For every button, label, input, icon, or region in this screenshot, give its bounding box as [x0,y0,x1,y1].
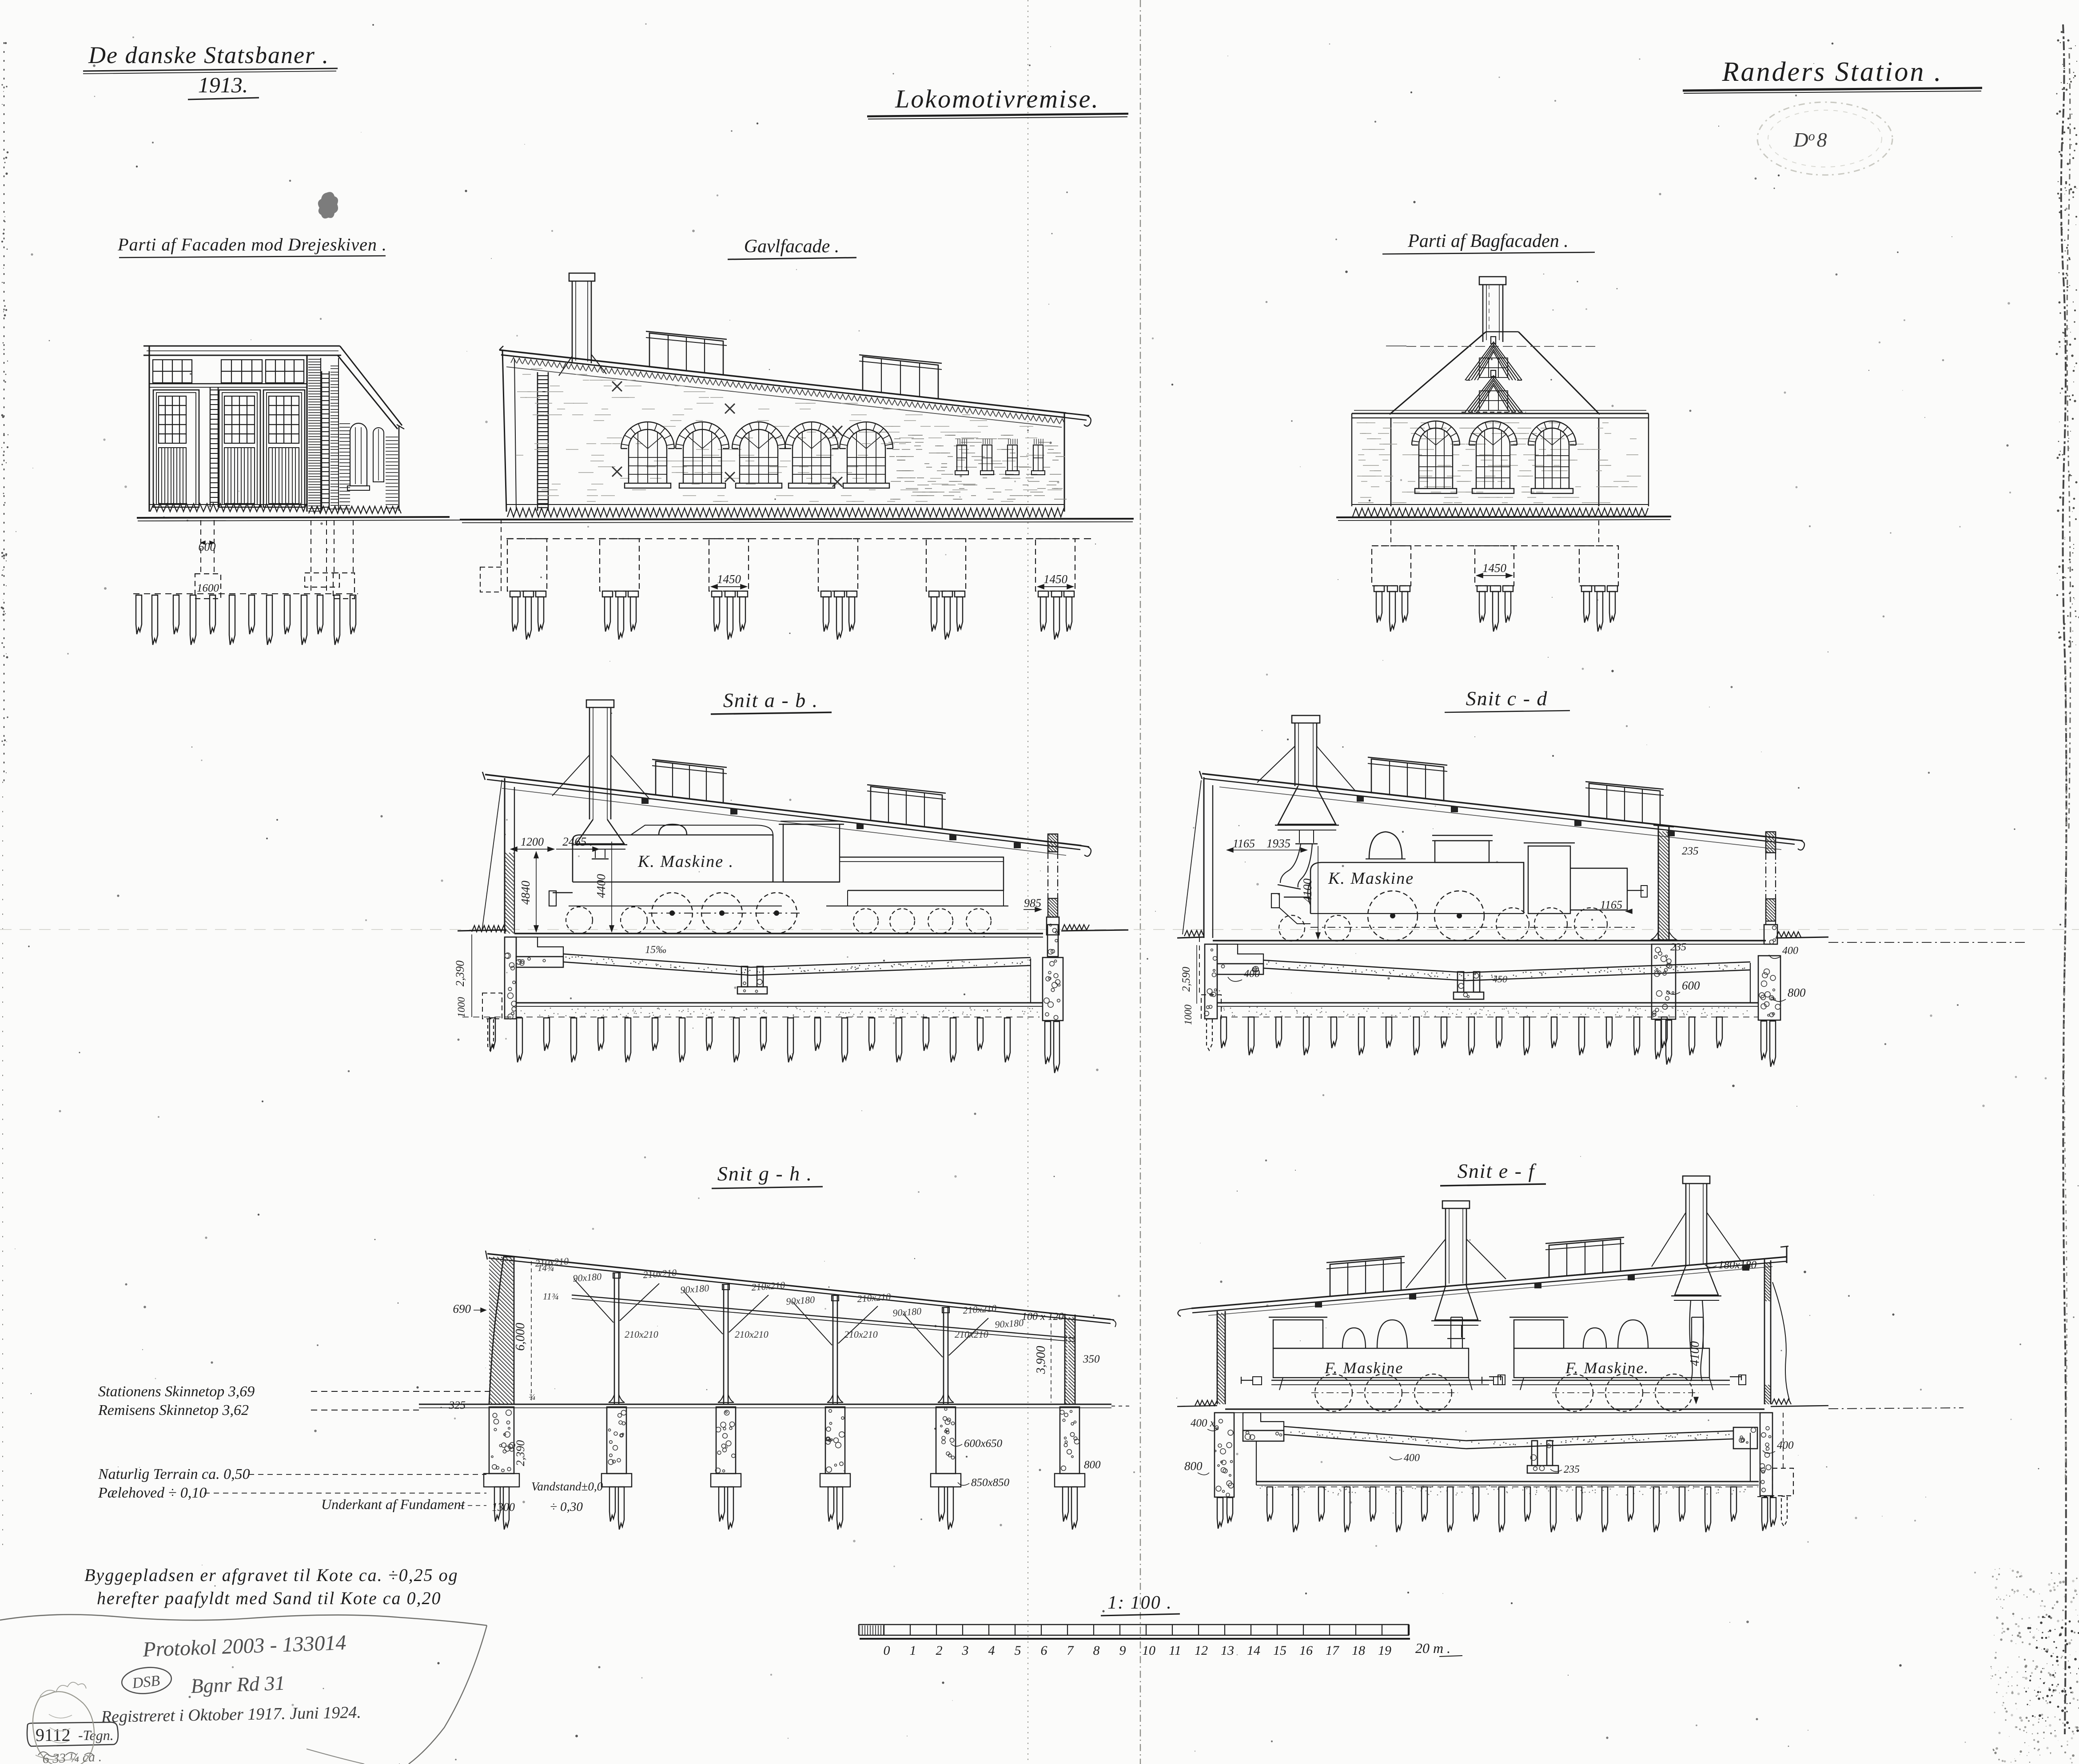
svg-text:1913.: 1913. [198,72,248,97]
svg-text:400 x: 400 x [1191,1417,1215,1429]
svg-text:Underkant af Fundament: Underkant af Fundament [321,1496,466,1512]
svg-text:1000: 1000 [1183,1005,1194,1025]
svg-text:Stationens Skinnetop 3,69: Stationens Skinnetop 3,69 [98,1383,255,1400]
svg-text:Naturlig Terrain ca. 0,50: Naturlig Terrain ca. 0,50 [98,1466,250,1482]
svg-text:1: 100 .: 1: 100 . [1107,1593,1172,1613]
svg-text:1000: 1000 [456,997,467,1018]
svg-text:8: 8 [1093,1643,1100,1658]
svg-text:2,590: 2,590 [1180,966,1192,992]
svg-text:450: 450 [1493,973,1507,985]
svg-text:÷ 0,30: ÷ 0,30 [550,1500,583,1514]
svg-text:4: 4 [988,1643,995,1658]
svg-text:2465 .: 2465 . [562,835,593,848]
svg-text:Vandstand±0,0: Vandstand±0,0 [531,1480,603,1493]
svg-text:Snit c - d: Snit c - d [1466,687,1548,710]
svg-text:2: 2 [936,1643,943,1658]
svg-text:12: 12 [1195,1643,1208,1658]
svg-text:F. Maskine: F. Maskine [1324,1359,1403,1377]
svg-text:K. Maskine: K. Maskine [1328,869,1414,888]
svg-text:1450: 1450 [1043,572,1068,586]
svg-text:13: 13 [1221,1643,1234,1658]
svg-text:90x180: 90x180 [680,1283,709,1295]
svg-text:800: 800 [1084,1459,1101,1471]
svg-text:6,000: 6,000 [514,1323,527,1351]
svg-text:Randers Station .: Randers Station . [1722,57,1943,87]
svg-text:210x210: 210x210 [963,1303,997,1316]
svg-text:6 33 ¼ ca .: 6 33 ¼ ca . [42,1749,102,1764]
svg-text:210x210: 210x210 [751,1279,785,1293]
svg-text:16: 16 [1299,1643,1313,1658]
svg-text:1300: 1300 [492,1501,515,1514]
svg-text:Snit g - h .: Snit g - h . [717,1162,812,1185]
svg-text:De danske Statsbaner .: De danske Statsbaner . [88,42,329,68]
svg-text:-Tegn.: -Tegn. [78,1727,114,1743]
svg-text:1165: 1165 [1600,898,1622,911]
svg-text:850x850: 850x850 [971,1477,1010,1489]
svg-text:235: 235 [1682,845,1699,857]
svg-text:11¾: 11¾ [543,1291,558,1302]
svg-text:90x180: 90x180 [786,1294,815,1307]
svg-text:600x650: 600x650 [964,1438,1003,1450]
svg-text:Parti af Bagfacaden .: Parti af Bagfacaden . [1407,231,1569,251]
svg-text:15‰: 15‰ [645,944,666,956]
svg-text:800: 800 [1788,986,1806,999]
svg-text:210x210: 210x210 [857,1291,891,1304]
svg-text:K. Maskine .: K. Maskine . [637,852,734,871]
svg-text:400: 400 [1782,945,1798,957]
svg-text:DSB: DSB [131,1673,161,1692]
svg-text:herefter paafyldt med Sand ti: herefter paafyldt med Sand til Kote ca 0… [97,1588,442,1608]
svg-text:3: 3 [962,1643,969,1658]
svg-text:90x180: 90x180 [573,1271,602,1284]
svg-text:Snit e - f: Snit e - f [1458,1160,1537,1182]
svg-text:6: 6 [1041,1643,1047,1658]
svg-text:15: 15 [1273,1643,1286,1658]
svg-text:600: 600 [1682,979,1700,992]
svg-text:210x210: 210x210 [735,1329,769,1340]
svg-text:1935: 1935 [1267,837,1290,850]
svg-text:100 x 120: 100 x 120 [1022,1311,1064,1323]
svg-text:325: 325 [449,1399,466,1411]
svg-text:14: 14 [1247,1643,1260,1658]
svg-text:7: 7 [1067,1643,1075,1658]
svg-text:20 m .: 20 m . [1415,1640,1450,1656]
svg-text:1200: 1200 [521,835,544,848]
svg-text:985: 985 [1024,897,1041,910]
svg-text:Bgnr Rd 31: Bgnr Rd 31 [191,1672,286,1697]
svg-text:Gavlfacade .: Gavlfacade . [744,236,840,257]
svg-text:3,900: 3,900 [1034,1346,1048,1375]
svg-text:4100: 4100 [1688,1341,1702,1366]
svg-text:Byggepladsen er afgravet til: Byggepladsen er afgravet til Kote ca. ÷0… [84,1565,458,1585]
svg-text:1450: 1450 [1482,561,1507,575]
svg-text:Snit a - b .: Snit a - b . [723,689,818,711]
svg-text:2,390: 2,390 [454,961,466,987]
svg-text:11: 11 [1169,1643,1181,1658]
svg-text:90x180: 90x180 [892,1306,922,1319]
svg-text:2,390: 2,390 [514,1440,527,1466]
svg-text:Parti af Facaden mod Drejeskiv: Parti af Facaden mod Drejeskiven . [117,234,387,254]
svg-text:19: 19 [1378,1643,1391,1658]
svg-text:400: 400 [1244,968,1260,980]
svg-text:4840: 4840 [519,881,532,905]
svg-text:210x210: 210x210 [643,1267,677,1280]
svg-text:1: 1 [910,1643,916,1658]
svg-text:690: 690 [453,1302,471,1315]
svg-text:Pælehoved ÷ 0,10: Pælehoved ÷ 0,10 [98,1485,207,1501]
svg-text:18: 18 [1352,1643,1365,1658]
svg-text:17: 17 [1326,1643,1340,1658]
svg-text:350: 350 [1083,1353,1100,1365]
svg-text:5: 5 [1015,1643,1021,1658]
svg-text:180x180: 180x180 [1718,1259,1757,1271]
svg-text:400: 400 [1777,1439,1794,1451]
svg-text:1600: 1600 [197,582,219,594]
svg-text:10: 10 [1142,1643,1155,1658]
svg-text:Lokomotivremise.: Lokomotivremise. [895,84,1099,113]
svg-text:Remisens Skinnetop 3,62: Remisens Skinnetop 3,62 [98,1402,249,1418]
svg-text:9: 9 [1119,1643,1126,1658]
svg-text:4400: 4400 [594,874,608,898]
svg-text:1165: 1165 [1233,837,1255,850]
svg-text:1450: 1450 [717,572,741,586]
svg-text:210x210: 210x210 [955,1329,988,1340]
svg-text:0: 0 [884,1643,890,1658]
svg-text:90x180: 90x180 [995,1317,1024,1330]
svg-text:210x210: 210x210 [535,1255,569,1269]
svg-text:210x210: 210x210 [844,1329,878,1340]
svg-text:F. Maskine.: F. Maskine. [1565,1359,1649,1377]
svg-text:400: 400 [1404,1452,1420,1464]
svg-text:4100: 4100 [1301,878,1314,903]
svg-text:¾: ¾ [529,1392,535,1402]
svg-text:235: 235 [1564,1464,1580,1475]
svg-text:210x210: 210x210 [625,1329,658,1340]
svg-text:235: 235 [1670,942,1686,953]
svg-text:800: 800 [1184,1459,1203,1473]
